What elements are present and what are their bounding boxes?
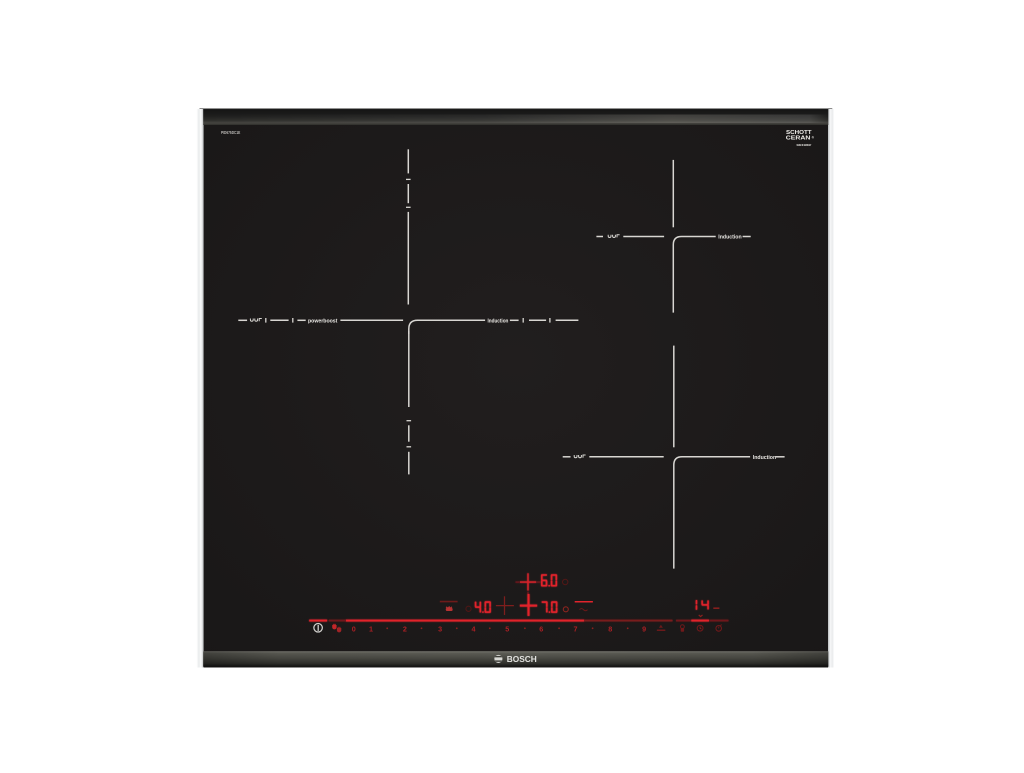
svg-text:Induction: Induction [488, 318, 509, 324]
svg-text:Induction: Induction [753, 455, 776, 461]
svg-text:0: 0 [352, 624, 356, 633]
svg-text:7: 7 [574, 624, 578, 633]
svg-text:CERAN: CERAN [786, 136, 811, 142]
svg-text:powerboost: powerboost [308, 318, 338, 324]
svg-text:1: 1 [369, 624, 373, 633]
svg-text:4: 4 [472, 624, 476, 633]
svg-text:2: 2 [403, 624, 407, 633]
svg-text:MADE IN GERMANY: MADE IN GERMANY [797, 144, 812, 147]
svg-text:5: 5 [505, 624, 509, 633]
svg-text:PID675DC1E: PID675DC1E [221, 130, 240, 135]
svg-text:6: 6 [539, 624, 543, 633]
svg-text:9: 9 [642, 624, 646, 633]
svg-text:3: 3 [438, 624, 442, 633]
svg-text:BOSCH: BOSCH [507, 654, 537, 664]
svg-text:8: 8 [608, 624, 612, 633]
svg-text:Induction: Induction [718, 235, 741, 241]
